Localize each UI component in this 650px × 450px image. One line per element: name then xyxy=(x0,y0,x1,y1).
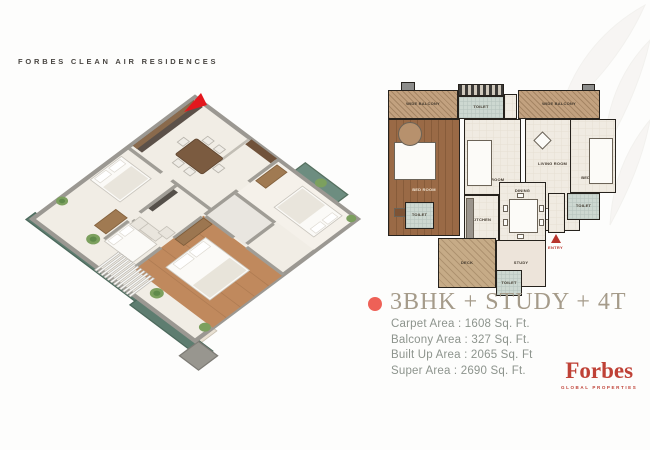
chair xyxy=(503,219,508,226)
balcony-right: WIDE BALCONY xyxy=(518,90,600,119)
pergola-strip xyxy=(458,84,504,96)
balcony-area: Balcony Area : 327 Sq. Ft. xyxy=(391,333,533,349)
builtup-area: Built Up Area : 2065 Sq. Ft xyxy=(391,348,533,364)
bed3-2d xyxy=(589,138,613,184)
room-dining: DINING xyxy=(499,182,546,244)
super-area: Super Area : 2690 Sq. Ft. xyxy=(391,364,533,380)
brochure-page: FORBES CLEAN AIR RESIDENCES xyxy=(0,0,650,450)
floorplan-2d: WIDE BALCONY WIDE BALCONY TOILET BED ROO… xyxy=(385,82,618,296)
chair xyxy=(503,205,508,212)
floorplan-3d xyxy=(0,80,368,410)
forbes-tagline: GLOBAL PROPERTIES xyxy=(561,385,637,390)
brand-header: FORBES CLEAN AIR RESIDENCES xyxy=(18,57,218,66)
shaft xyxy=(504,94,517,119)
chair-2d xyxy=(533,131,551,149)
chair xyxy=(517,193,524,198)
bullet-icon xyxy=(368,297,382,311)
store-niche xyxy=(548,193,565,233)
balcony-left: WIDE BALCONY xyxy=(388,90,458,119)
chair xyxy=(539,219,544,226)
carpet-area: Carpet Area : 1608 Sq. Ft. xyxy=(391,317,533,333)
entry-label: ENTRY xyxy=(548,245,563,250)
forbes-logo: Forbes GLOBAL PROPERTIES xyxy=(561,359,637,390)
toilet-bedroom3: TOILET xyxy=(567,193,600,220)
bed2-2d xyxy=(467,140,492,186)
forbes-wordmark: Forbes xyxy=(561,359,637,383)
area-details: Carpet Area : 1608 Sq. Ft. Balcony Area … xyxy=(391,317,533,379)
dining-table-2d xyxy=(509,199,538,233)
chair xyxy=(539,205,544,212)
entry-arrow-2d-icon xyxy=(551,234,561,243)
lobby-toilet: TOILET xyxy=(458,96,504,119)
deck: DECK xyxy=(438,238,496,288)
toilet-master: TOILET xyxy=(405,202,434,229)
room-bedroom3: BED ROOM xyxy=(570,119,616,193)
unit-title: 3BHK + STUDY + 4T xyxy=(390,289,627,316)
master-bed-2d xyxy=(394,142,436,180)
iso-scene xyxy=(12,86,368,370)
round-chair-2d xyxy=(398,122,422,146)
chair xyxy=(517,234,524,239)
